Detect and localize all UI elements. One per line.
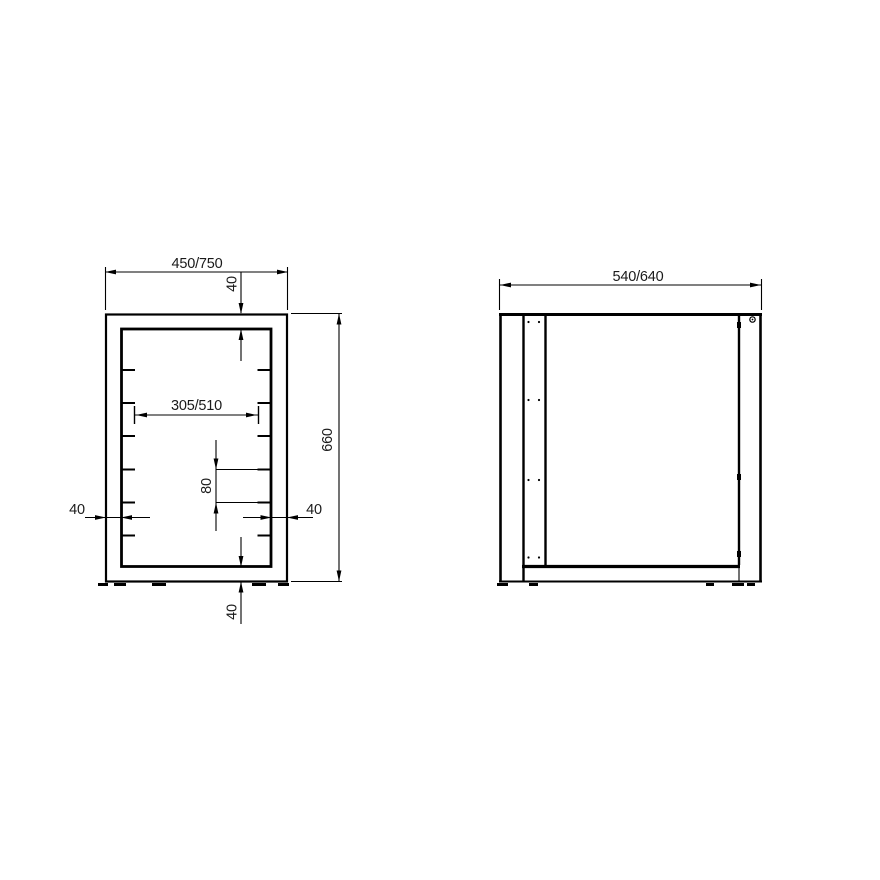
arrowhead-down: [239, 303, 244, 314]
side-frame-outline: [499, 313, 762, 582]
arrowhead-left: [500, 283, 511, 288]
arrowhead-down: [214, 459, 219, 470]
dim-front-overall-height: 660: [291, 314, 342, 582]
front-frame-outline: [106, 315, 287, 582]
arrowhead-right: [95, 515, 106, 520]
dim-side-overall-depth: 540/640: [500, 269, 762, 310]
dim-front-right-post: 40: [243, 502, 322, 520]
shelf-slot-ticks-left: [121, 370, 135, 536]
front-inner-opening: [122, 329, 272, 567]
arrowhead-up: [239, 329, 244, 340]
dim-front-overall-width: 450/750: [105, 256, 288, 310]
front-left-post-label: 40: [69, 502, 85, 518]
front-overall-height-label: 660: [320, 428, 336, 452]
dim-front-clear-width: 305/510: [135, 398, 259, 424]
front-bottom-rail-label: 40: [225, 604, 241, 620]
dim-front-top-rail: 40: [225, 272, 244, 361]
arrowhead-left: [287, 515, 298, 520]
arrowhead-up: [337, 314, 342, 325]
arrowhead-left: [136, 413, 147, 418]
front-outer-frame: [106, 315, 287, 582]
side-overall-depth-label: 540/640: [612, 269, 663, 285]
front-view: 450/750 40 305/510 80: [69, 256, 342, 624]
front-right-post-label: 40: [306, 502, 322, 518]
front-clear-width-label: 305/510: [171, 398, 222, 414]
side-feet: [497, 583, 755, 586]
side-screw-holes: [527, 321, 540, 559]
dim-front-left-post: 40: [69, 502, 150, 520]
front-slot-pitch-label: 80: [199, 478, 215, 494]
arrowhead-right: [750, 283, 761, 288]
arrowhead-up: [239, 582, 244, 593]
arrowhead-right: [277, 270, 288, 275]
side-bolt-hole: [750, 317, 755, 322]
side-view: 540/640: [497, 269, 762, 586]
arrowhead-up: [214, 503, 219, 514]
front-top-rail-label: 40: [225, 276, 241, 292]
arrowhead-left: [105, 270, 116, 275]
front-feet: [98, 583, 289, 586]
shelf-slot-ticks-right: [258, 370, 272, 536]
front-overall-width-label: 450/750: [171, 256, 222, 272]
arrowhead-right: [246, 413, 257, 418]
drawing-svg: 450/750 40 305/510 80: [0, 0, 880, 880]
arrowhead-down: [337, 571, 342, 582]
technical-drawing-canvas: 450/750 40 305/510 80: [0, 0, 880, 880]
